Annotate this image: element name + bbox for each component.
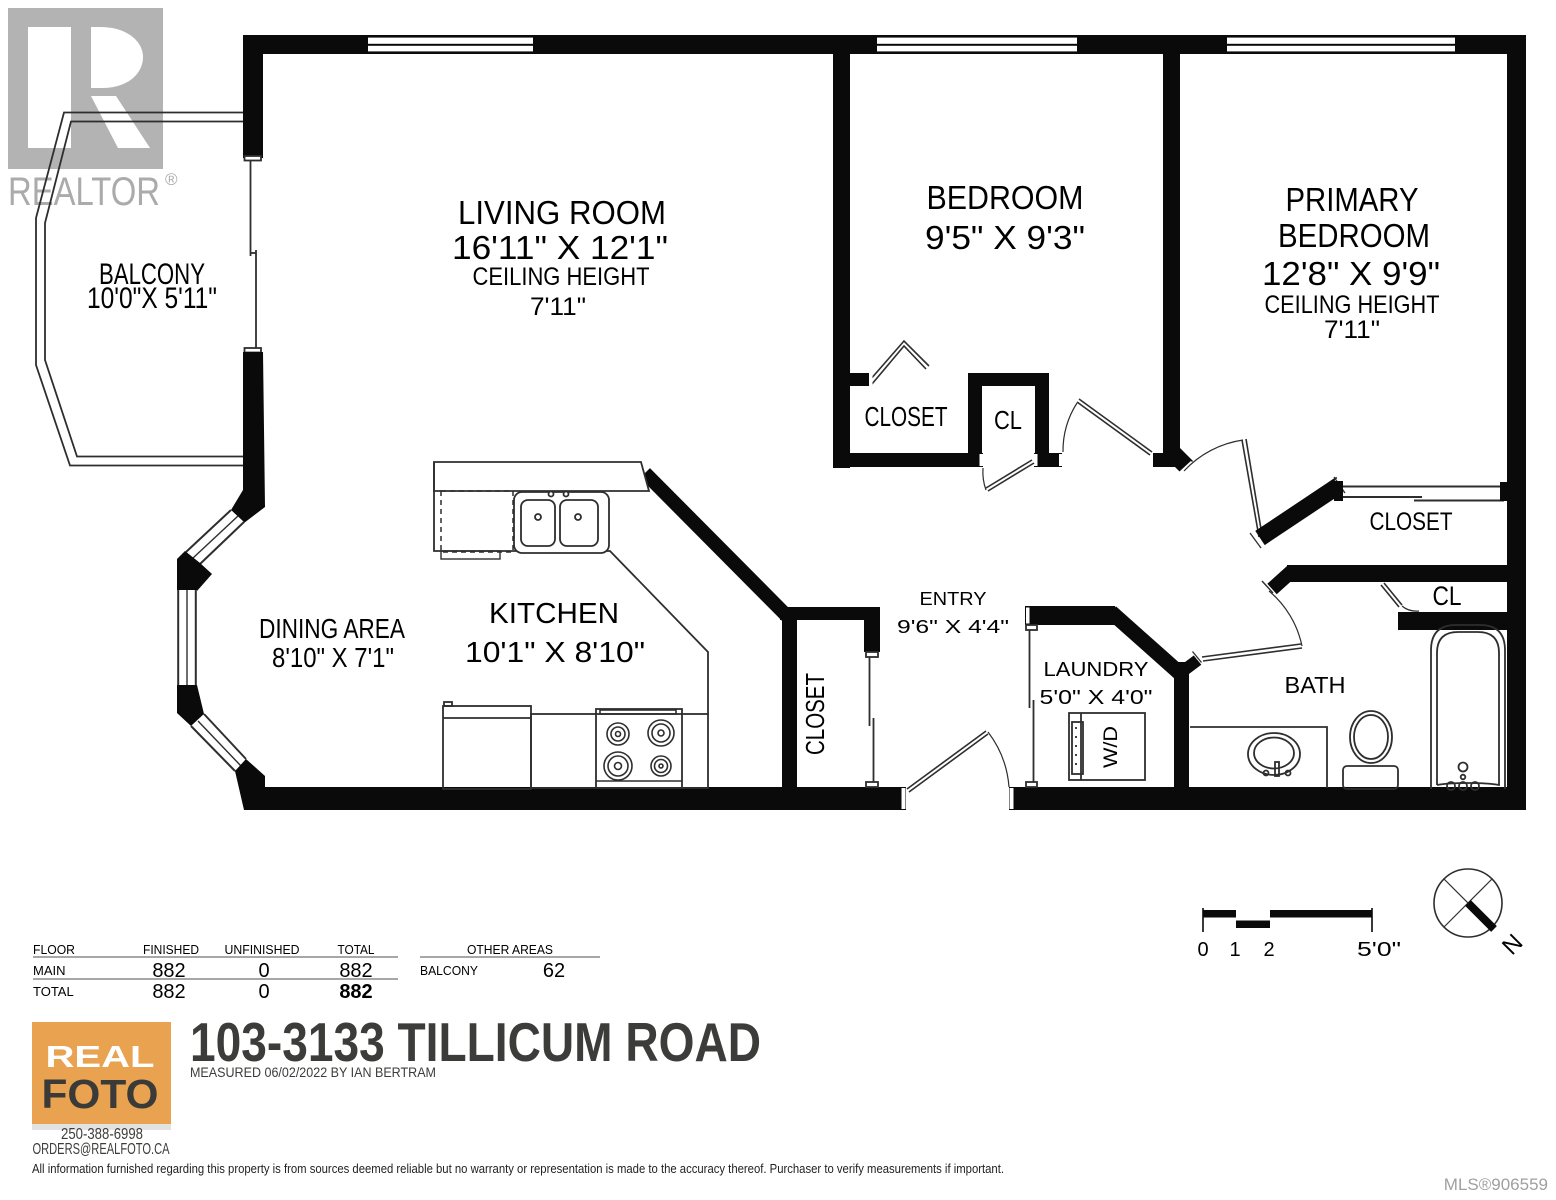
- svg-text:CL: CL: [1433, 581, 1462, 611]
- svg-text:10'0"X 5'11": 10'0"X 5'11": [87, 282, 217, 315]
- svg-text:CLOSET: CLOSET: [800, 673, 830, 755]
- svg-text:CL: CL: [994, 405, 1022, 435]
- svg-text:BALCONY: BALCONY: [420, 963, 478, 978]
- svg-text:FINISHED: FINISHED: [143, 942, 199, 957]
- svg-text:16'11" X 12'1": 16'11" X 12'1": [452, 229, 668, 266]
- svg-text:TOTAL: TOTAL: [338, 942, 375, 957]
- svg-text:5'0" X 4'0": 5'0" X 4'0": [1040, 687, 1153, 709]
- svg-text:9'6" X 4'4": 9'6" X 4'4": [897, 617, 1009, 637]
- svg-text:KITCHEN: KITCHEN: [489, 598, 619, 630]
- svg-text:W/D: W/D: [1101, 726, 1122, 768]
- svg-text:882: 882: [152, 981, 185, 1003]
- svg-text:10'1" X 8'10": 10'1" X 8'10": [465, 637, 645, 669]
- svg-text:1: 1: [1229, 939, 1240, 961]
- svg-text:DINING AREA: DINING AREA: [259, 613, 405, 644]
- svg-text:TOTAL: TOTAL: [33, 984, 74, 999]
- svg-text:CEILING HEIGHT: CEILING HEIGHT: [1265, 291, 1440, 319]
- svg-text:BATH: BATH: [1285, 672, 1346, 698]
- svg-text:MEASURED 06/02/2022 BY IAN: MEASURED 06/02/2022 BY IAN BERTRAM: [190, 1064, 436, 1080]
- svg-text:UNFINISHED: UNFINISHED: [225, 942, 300, 957]
- svg-text:FLOOR: FLOOR: [33, 942, 75, 957]
- svg-text:2: 2: [1263, 939, 1274, 961]
- svg-text:0: 0: [258, 981, 269, 1003]
- svg-text:REALTOR: REALTOR: [8, 170, 160, 214]
- svg-text:ENTRY: ENTRY: [920, 589, 987, 609]
- svg-text:5'0": 5'0": [1357, 939, 1401, 961]
- svg-text:0: 0: [1197, 939, 1208, 961]
- svg-text:7'11": 7'11": [1324, 316, 1380, 344]
- svg-text:MLS®906559: MLS®906559: [1444, 1175, 1548, 1194]
- svg-text:ORDERS@REALFOTO.CA: ORDERS@REALFOTO.CA: [33, 1141, 170, 1158]
- svg-text:CEILING HEIGHT: CEILING HEIGHT: [473, 263, 650, 291]
- svg-text:12'8" X 9'9": 12'8" X 9'9": [1262, 255, 1440, 292]
- svg-text:CLOSET: CLOSET: [1370, 508, 1453, 536]
- svg-text:62: 62: [543, 960, 565, 982]
- svg-text:7'11": 7'11": [530, 293, 586, 321]
- svg-text:OTHER AREAS: OTHER AREAS: [467, 942, 553, 957]
- svg-text:CLOSET: CLOSET: [865, 401, 948, 432]
- svg-text:FOTO: FOTO: [42, 1071, 159, 1117]
- svg-text:MAIN: MAIN: [33, 963, 66, 978]
- svg-text:BEDROOM: BEDROOM: [927, 179, 1084, 216]
- svg-text:PRIMARY: PRIMARY: [1286, 181, 1419, 218]
- svg-text:®: ®: [165, 170, 178, 189]
- svg-text:8'10" X 7'1": 8'10" X 7'1": [272, 642, 394, 673]
- svg-text:9'5" X 9'3": 9'5" X 9'3": [925, 219, 1085, 256]
- svg-text:882: 882: [339, 981, 372, 1003]
- svg-text:REAL: REAL: [46, 1039, 155, 1074]
- svg-text:All information furnished rega: All information furnished regarding this…: [32, 1161, 1004, 1176]
- svg-text:BEDROOM: BEDROOM: [1278, 217, 1430, 254]
- svg-text:LIVING ROOM: LIVING ROOM: [458, 194, 666, 231]
- svg-text:LAUNDRY: LAUNDRY: [1044, 659, 1149, 681]
